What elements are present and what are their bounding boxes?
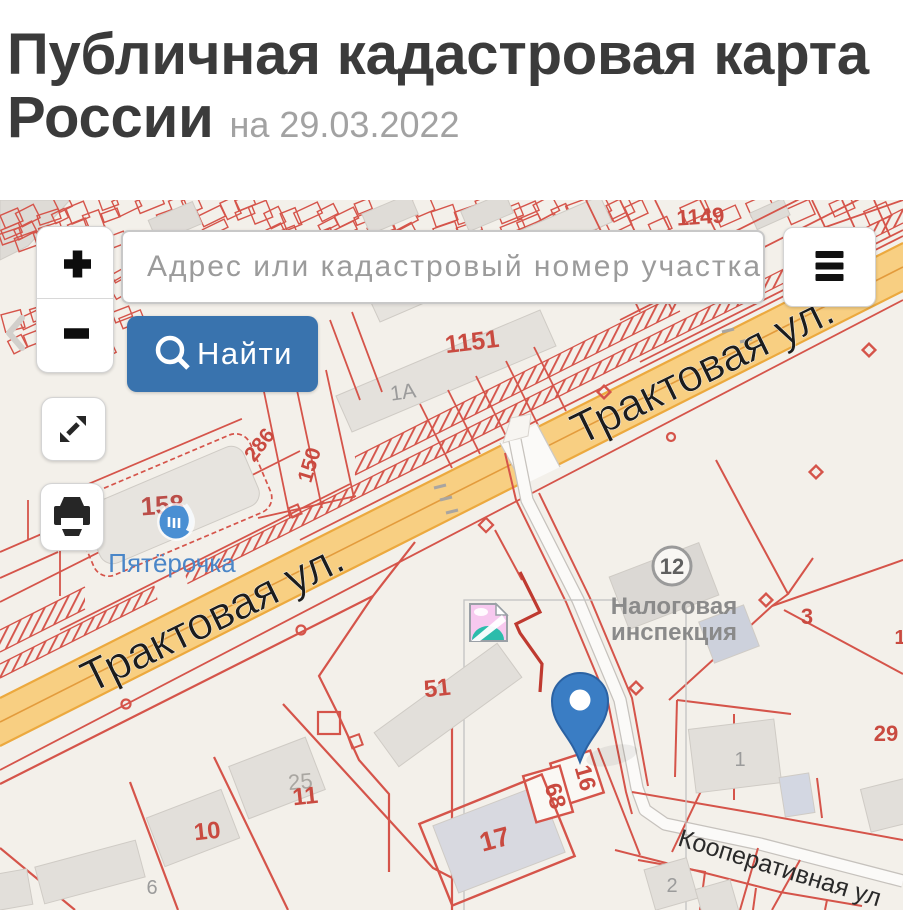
svg-text:12: 12 [660,554,684,579]
svg-text:Найти: Найти [197,336,293,371]
svg-text:2: 2 [666,875,677,897]
svg-text:инспекция: инспекция [611,619,737,646]
svg-text:1А: 1А [389,379,418,405]
svg-text:10: 10 [193,817,222,847]
svg-text:1: 1 [734,749,745,771]
svg-text:11: 11 [291,782,319,812]
svg-text:Налоговая: Налоговая [611,593,737,620]
svg-text:3: 3 [801,604,813,629]
svg-text:1149: 1149 [676,202,725,230]
svg-text:51: 51 [423,674,452,704]
svg-text:1: 1 [894,627,903,649]
svg-text:6: 6 [146,877,157,899]
svg-text:29: 29 [874,721,898,746]
svg-text:Пятёрочка: Пятёрочка [108,548,236,578]
